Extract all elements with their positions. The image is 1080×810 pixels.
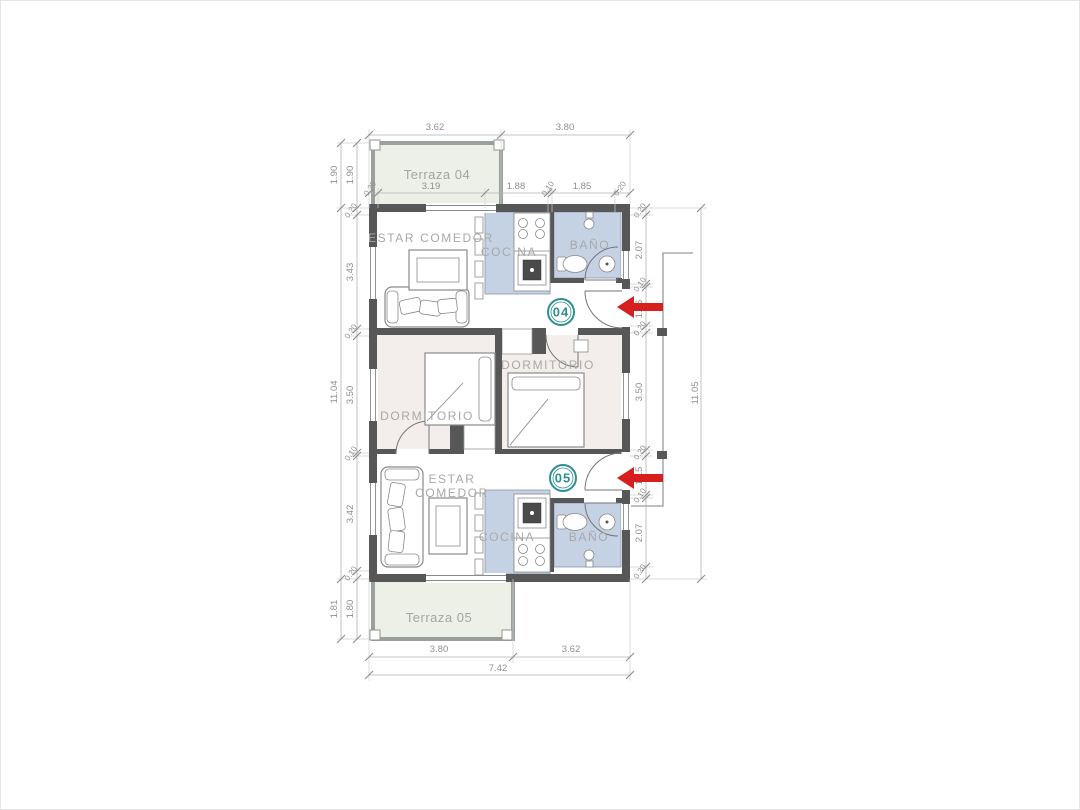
dim-label: 1.90 <box>329 166 340 185</box>
terrace-05-deck <box>373 579 513 639</box>
terrace-post <box>494 140 504 150</box>
room-label-terraza-05: Terraza 05 <box>406 610 472 625</box>
room-label-estar-comedor-04: ESTAR COMEDOR <box>368 231 494 245</box>
room-label-terraza-04: Terraza 04 <box>404 167 470 182</box>
dim-label: 2.07 <box>634 524 645 543</box>
dim-label: 3.43 <box>345 263 356 282</box>
floor-plan-canvas: 3.62 3.80 0.20 3.19 1.88 0.10 1.85 0.20 … <box>1 1 1080 810</box>
room-label-cocina-05: COCINA <box>479 530 535 544</box>
sofa <box>385 287 469 327</box>
unit-04-number: 04 <box>553 305 569 320</box>
unit-05-badge: 05 <box>550 465 576 491</box>
sink <box>584 550 594 560</box>
terrace-door-window <box>426 573 506 583</box>
wall-bedroom-divider <box>495 328 502 454</box>
window <box>368 483 378 535</box>
wall-mid-lower-right <box>502 449 630 454</box>
wall-mid-upper-left <box>369 328 495 335</box>
window <box>368 369 378 421</box>
unit-05-number: 05 <box>555 471 571 486</box>
column-marker <box>657 451 667 459</box>
closet-nook-04 <box>502 329 532 354</box>
terrace-post <box>370 630 380 640</box>
room-label-cocina-04: COCINA <box>481 245 537 259</box>
wall-mid-upper-right <box>578 328 630 335</box>
dim-label: 0.20 <box>612 179 629 197</box>
dim-label: 11.05 <box>690 381 701 404</box>
room-label-comedor-05: COMEDOR <box>415 486 489 500</box>
wall-closet-stub-05 <box>450 424 464 454</box>
sink <box>586 212 593 218</box>
coffee-table <box>409 250 467 290</box>
screenshot-frame: 3.62 3.80 0.20 3.19 1.88 0.10 1.85 0.20 … <box>0 0 1080 810</box>
dim-label: 3.80 <box>556 122 575 133</box>
wall-mid-lower-left <box>369 449 396 454</box>
dim-label: 2.07 <box>634 241 645 260</box>
dim-label: 3.62 <box>426 122 445 133</box>
window <box>621 373 631 419</box>
unit-04-badge: 04 <box>548 299 574 325</box>
dim-label: 3.62 <box>562 644 581 655</box>
dim-label: 3.50 <box>345 386 356 405</box>
door-arc-entry-05 <box>585 453 622 490</box>
dim-label: 1.81 <box>329 600 340 619</box>
room-label-estar-05: ESTAR <box>428 472 475 486</box>
dim-label: 1.88 <box>507 181 526 192</box>
terrace-post <box>370 140 380 150</box>
dim-label: 3.42 <box>345 505 356 524</box>
terrace-door-window <box>426 203 496 213</box>
dim-label: 0.10 <box>540 179 557 197</box>
door-arc-entry-04 <box>585 291 622 328</box>
pillow <box>512 377 580 390</box>
dim-label: 3.19 <box>422 181 441 192</box>
room-label-dormitorio-05: DORMITORIO <box>380 409 474 423</box>
column-marker <box>657 328 667 336</box>
wall-mid-lower <box>429 449 450 454</box>
room-label-dormitorio-04: DORMITORIO <box>501 358 595 372</box>
wall-bano-05-top <box>550 498 584 503</box>
dim-label: 3.80 <box>430 644 449 655</box>
pillow <box>479 357 491 421</box>
table <box>429 498 467 554</box>
wall-bano-04-bottom <box>550 278 584 283</box>
wall-cocina-bano-05 <box>550 498 554 572</box>
sofa <box>381 467 423 567</box>
toilet <box>563 514 587 531</box>
closet-nook-05 <box>464 425 495 449</box>
room-label-bano-04: BAÑO <box>570 238 610 252</box>
wall-closet-stub-04 <box>532 328 546 354</box>
dim-label: 1.90 <box>345 166 356 185</box>
wall-top <box>369 204 630 212</box>
dim-label: 3.50 <box>634 383 645 402</box>
wall-cocina-bano-04 <box>550 212 554 278</box>
dim-label: 1.85 <box>573 181 592 192</box>
dim-label: 11.04 <box>329 380 340 403</box>
toilet <box>563 256 587 273</box>
window <box>621 504 631 530</box>
nightstand <box>574 340 588 352</box>
window <box>621 251 631 279</box>
terrace-post <box>502 630 512 640</box>
dim-label: 1.80 <box>345 600 356 619</box>
window <box>368 247 378 299</box>
room-label-bano-05: BAÑO <box>569 530 609 544</box>
dim-label: 7.42 <box>489 663 508 674</box>
wall-bano-05-top-stub <box>616 498 622 503</box>
